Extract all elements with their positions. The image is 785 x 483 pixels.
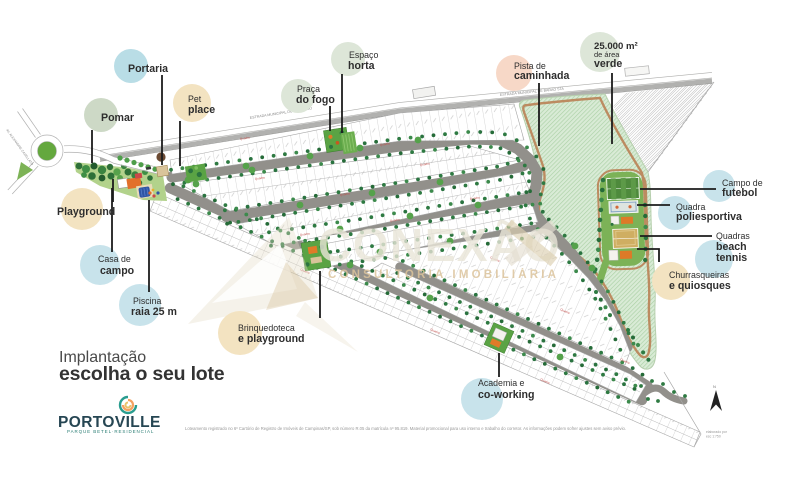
svg-text:escolha o seu lote: escolha o seu lote: [59, 363, 225, 385]
svg-text:tennis: tennis: [716, 252, 747, 264]
svg-text:Quadras: Quadras: [716, 231, 750, 241]
svg-text:Churrasqueiras: Churrasqueiras: [669, 270, 730, 280]
svg-text:horta: horta: [348, 60, 375, 72]
svg-text:Pomar: Pomar: [101, 112, 134, 124]
svg-text:Loteamento registrado no 6º Ca: Loteamento registrado no 6º Cartório de …: [185, 426, 626, 431]
svg-text:PARQUE BETEL·RESIDENCIAL: PARQUE BETEL·RESIDENCIAL: [67, 429, 154, 434]
svg-text:e playground: e playground: [238, 333, 305, 345]
svg-text:Academia e: Academia e: [478, 378, 525, 388]
svg-text:place: place: [188, 104, 215, 116]
svg-text:do fogo: do fogo: [296, 94, 335, 106]
svg-text:co-working: co-working: [478, 389, 535, 401]
svg-text:caminhada: caminhada: [514, 70, 569, 82]
svg-text:raia 25 m: raia 25 m: [131, 306, 177, 318]
svg-text:Playground: Playground: [57, 206, 115, 218]
svg-text:e quiosques: e quiosques: [669, 280, 731, 292]
svg-text:poliesportiva: poliesportiva: [676, 211, 742, 223]
svg-text:Espaço: Espaço: [349, 50, 378, 60]
svg-text:esc 1:750: esc 1:750: [706, 435, 721, 439]
svg-text:Brinquedoteca: Brinquedoteca: [238, 323, 295, 333]
svg-text:Piscina: Piscina: [133, 296, 161, 306]
svg-text:Casa de: Casa de: [98, 254, 131, 264]
svg-text:N: N: [713, 384, 716, 389]
svg-text:campo: campo: [100, 265, 135, 277]
svg-text:CONSULTORIA IMOBILIÁRIA: CONSULTORIA IMOBILIÁRIA: [328, 268, 559, 281]
svg-text:futebol: futebol: [722, 187, 757, 199]
svg-text:Portaria: Portaria: [128, 63, 168, 75]
svg-text:Praça: Praça: [297, 84, 320, 94]
svg-text:verde: verde: [594, 58, 622, 70]
svg-text:Pet: Pet: [188, 94, 202, 104]
svg-text:elaborado por: elaborado por: [706, 430, 728, 434]
